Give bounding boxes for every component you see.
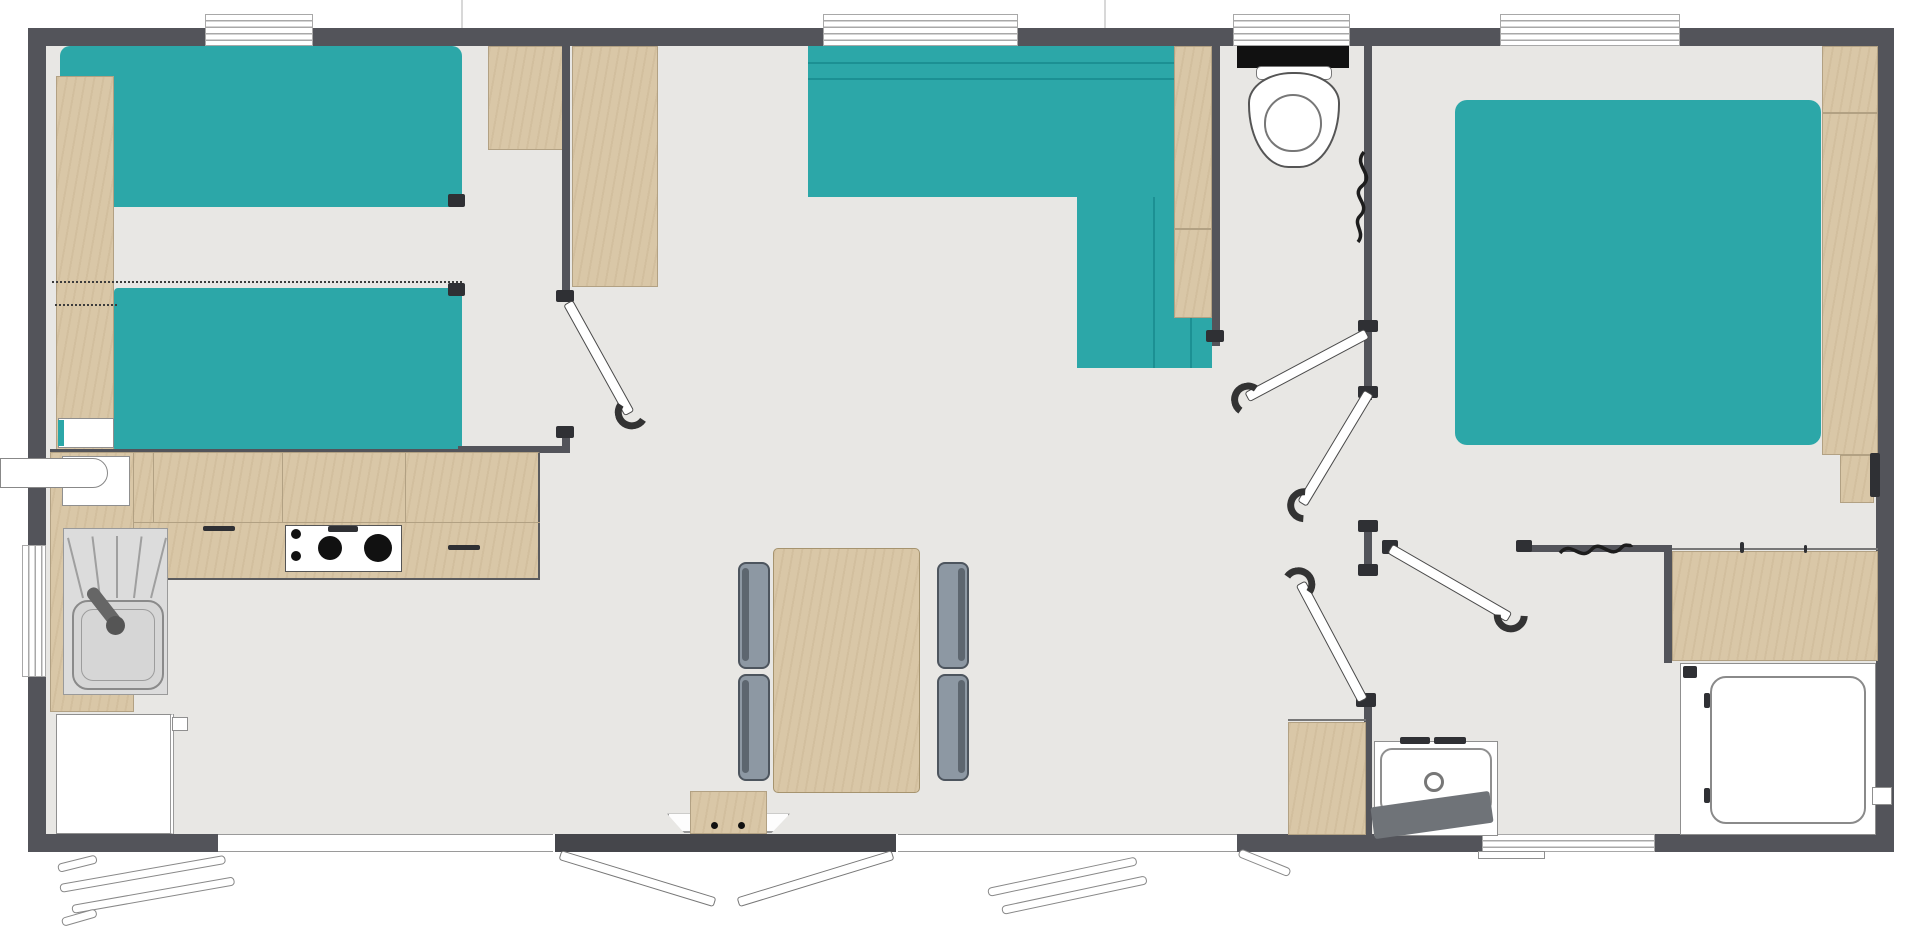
drawer-handle xyxy=(203,526,235,531)
wardrobe-master xyxy=(1822,46,1878,455)
hob-grate-bar xyxy=(328,526,358,532)
wall-access-notch xyxy=(1872,787,1892,805)
entrance-threshold xyxy=(553,834,898,852)
single-bed-bottom xyxy=(114,288,462,452)
chair-backrest xyxy=(958,568,965,661)
entrance-step-board xyxy=(690,791,767,834)
outer-wall-right xyxy=(1876,28,1894,852)
dining-chair xyxy=(738,674,770,781)
fold-line-dotted-short xyxy=(55,304,117,306)
window-twin-bedroom xyxy=(205,14,313,46)
dresser-counter xyxy=(1672,551,1878,661)
shelf-bar xyxy=(1434,737,1466,744)
window-bottom-right xyxy=(1482,834,1655,852)
outer-wall-left xyxy=(28,28,46,852)
entrance-door-leaf-left xyxy=(559,850,717,907)
cushion-seam xyxy=(1190,318,1192,368)
dresser-top-edge xyxy=(1672,548,1878,550)
window-wc xyxy=(1233,14,1350,46)
sofa-seat-seam xyxy=(1153,197,1155,368)
door-hinge-hardware xyxy=(1516,540,1532,552)
shelf-step-edge xyxy=(58,420,64,446)
dining-chair xyxy=(937,674,969,781)
shutter-stay-small xyxy=(1237,848,1291,877)
partition-living-wc xyxy=(1212,28,1220,346)
faucet-knob xyxy=(106,616,125,635)
sofa-end-cushion xyxy=(1174,318,1212,368)
bedside-unit xyxy=(1840,455,1874,503)
hob-knob xyxy=(291,529,301,539)
sofa-backrest-seam xyxy=(808,78,1177,80)
toilet-cistern xyxy=(1237,46,1349,68)
shower-door-hinge xyxy=(1704,693,1710,708)
window-sill-mark xyxy=(1478,851,1545,859)
sofa-backrest-seam xyxy=(808,62,1177,64)
hob-knob xyxy=(291,551,301,561)
column-seam xyxy=(1174,228,1212,230)
fridge xyxy=(56,714,174,834)
double-bed xyxy=(1455,100,1821,445)
chair-backrest xyxy=(742,568,749,661)
shower-corner-bracket xyxy=(1683,666,1697,678)
dining-table xyxy=(773,548,920,793)
door-hinge-hardware xyxy=(556,426,574,438)
drainer-groove xyxy=(116,536,118,598)
shelf-bar xyxy=(1400,737,1430,744)
exterior-seam-line xyxy=(461,0,463,28)
step-foot xyxy=(738,822,745,829)
chair-backrest xyxy=(742,680,749,773)
cabinet-seam xyxy=(153,452,154,522)
cabinet-seam xyxy=(405,452,406,522)
single-bed-top xyxy=(60,46,462,207)
door-hinge-hardware xyxy=(1358,564,1378,576)
vanity-cabinet xyxy=(1288,722,1366,835)
bed-corner-bracket xyxy=(448,283,465,296)
toilet-bowl-inner xyxy=(1264,94,1322,152)
partition-shower-left xyxy=(1664,545,1672,663)
storage-cabinet-hall xyxy=(572,46,658,287)
partition-twin-bedroom xyxy=(562,28,570,298)
boiler-flue xyxy=(0,458,108,488)
cabinet-seam xyxy=(133,522,540,523)
plumbing-squiggle-vertical xyxy=(1346,152,1374,242)
dining-chair xyxy=(937,562,969,669)
shelf-step xyxy=(58,418,114,448)
window-living-room xyxy=(823,14,1018,46)
fold-line-dotted xyxy=(52,281,462,283)
window-master-bedroom xyxy=(1500,14,1680,46)
wardrobe-corner-bracket xyxy=(1870,453,1880,497)
window-bottom-center xyxy=(898,834,1237,852)
shower-tray xyxy=(1710,676,1866,824)
shutter-stay-arm xyxy=(57,854,98,872)
bedside-shelf xyxy=(56,76,114,453)
window-bottom-left xyxy=(218,834,553,852)
door-hinge-hardware xyxy=(1358,520,1378,532)
hob-burner-small xyxy=(318,536,342,560)
drawer-handle xyxy=(448,545,480,550)
vanity-top-edge xyxy=(1288,719,1366,721)
dining-chair xyxy=(738,562,770,669)
corner-sofa-top-arm xyxy=(808,46,1177,197)
hob-burner-large xyxy=(364,534,392,562)
exterior-seam-line xyxy=(1104,0,1106,28)
step-foot xyxy=(711,822,718,829)
dresser-tick xyxy=(1740,542,1744,553)
wardrobe-twin-bedroom xyxy=(488,46,564,150)
bed-corner-bracket xyxy=(448,194,465,207)
fridge-handle xyxy=(172,717,188,731)
dresser-tick xyxy=(1804,545,1807,553)
door-hinge-hardware xyxy=(1206,330,1224,342)
corner-sofa-right-arm xyxy=(1077,197,1177,368)
floor-plan-canvas xyxy=(0,0,1920,931)
entrance-door-leaf-right xyxy=(737,850,895,907)
plumbing-squiggle-horizontal xyxy=(1560,535,1632,563)
wardrobe-seam xyxy=(1822,112,1878,114)
washbasin-drain xyxy=(1424,772,1444,792)
storage-column xyxy=(1174,46,1212,318)
shower-door-hinge xyxy=(1704,788,1710,803)
chair-backrest xyxy=(958,680,965,773)
cabinet-seam xyxy=(282,452,283,522)
window-kitchen-left xyxy=(22,545,46,677)
